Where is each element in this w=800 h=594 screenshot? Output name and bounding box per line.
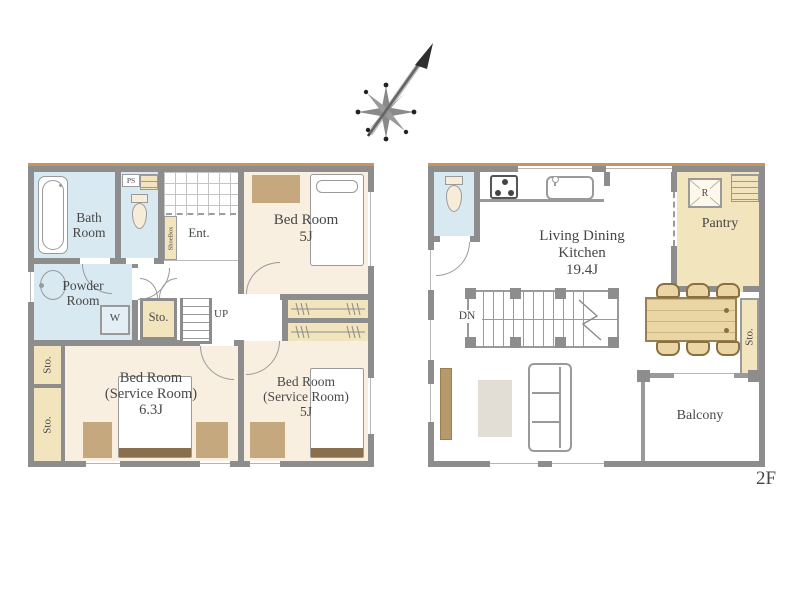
floorplan-canvas: ShoeBox PS (0, 0, 800, 594)
second-floor-plan: R Pantry Sto. DN (428, 166, 765, 467)
chair-icon (686, 341, 710, 356)
ps-label: PS (127, 176, 135, 185)
entrance-tile-floor (164, 172, 238, 216)
balcony-door (674, 371, 734, 379)
window (86, 461, 120, 467)
wall (637, 370, 650, 382)
entrance-step-edge (166, 213, 236, 215)
hanger-pipe-icon (288, 323, 368, 341)
chair-icon (686, 283, 710, 298)
stairs-down (467, 290, 619, 348)
chair-icon (656, 341, 680, 356)
stair-post (555, 337, 566, 348)
storage-right-label: Sto. (738, 298, 761, 376)
washer-label: W (100, 312, 130, 324)
window (518, 166, 592, 172)
table-knob (724, 308, 729, 313)
stair-post (465, 288, 476, 299)
ldk-label: Living Dining Kitchen 19.4J (500, 228, 664, 278)
tv-board (440, 368, 452, 440)
window (28, 272, 34, 302)
window (368, 378, 374, 434)
window (428, 320, 434, 360)
storage-hall-label: Sto. (140, 310, 177, 324)
dresser (196, 422, 228, 458)
closet-bedroom-c (288, 323, 368, 341)
stairs-up (180, 298, 212, 344)
wall (604, 172, 610, 186)
pantry-label: Pantry (684, 216, 756, 232)
pipe-space-box: PS (122, 174, 140, 187)
window (200, 461, 230, 467)
balcony-label: Balcony (664, 408, 736, 424)
bedroom-c-label: Bed Room (Service Room) 5J (245, 374, 367, 419)
stair-post (555, 288, 566, 299)
dresser (250, 422, 285, 458)
stair-post (608, 288, 619, 299)
desk (252, 175, 300, 203)
chair-icon (656, 283, 680, 298)
window (428, 384, 434, 422)
pantry-shelf (731, 174, 759, 202)
floor-label: 2F (744, 468, 788, 489)
stair-post (510, 288, 521, 299)
stairs-up-label: UP (214, 308, 240, 320)
closet-bedroom-a (288, 300, 368, 318)
window (552, 461, 604, 467)
stair-post (465, 337, 476, 348)
wall (61, 346, 65, 461)
rug (478, 380, 512, 437)
dresser (83, 422, 112, 458)
storage-left-lower-label: Sto. (34, 388, 61, 461)
toilet-icon (131, 194, 148, 203)
north-arrow-icon (352, 38, 448, 148)
window (250, 461, 280, 467)
wall (158, 172, 164, 264)
wall (154, 258, 164, 264)
stair-post (510, 337, 521, 348)
wall (743, 286, 759, 292)
dining-table (645, 297, 737, 342)
powder-room-label: Powder Room (38, 278, 128, 308)
bedroom-a-label: Bed Room 5J (244, 212, 368, 246)
window (490, 461, 538, 467)
stairs-down-label: DN (452, 310, 482, 323)
chair-icon (716, 283, 740, 298)
hall-step-line (164, 260, 238, 261)
wall (748, 370, 759, 382)
kitchen-sink-icon (546, 176, 594, 200)
storage-left-upper-label: Sto. (34, 346, 61, 384)
table-knob (724, 328, 729, 333)
entrance-label: Ent. (174, 226, 224, 241)
chair-icon (716, 341, 740, 356)
stove-icon (490, 175, 518, 199)
toilet-shelf (140, 174, 158, 190)
pantry-opening (673, 192, 675, 246)
refrigerator-label: R (700, 188, 711, 199)
bath-room-label: Bath Room (51, 210, 127, 240)
refrigerator-icon: R (688, 178, 722, 208)
wall (671, 172, 677, 192)
bedroom-b-label: Bed Room (Service Room) 6.3J (69, 370, 233, 419)
first-floor-plan: ShoeBox PS (28, 166, 374, 467)
sofa-icon (528, 363, 572, 452)
stairs-break-line (573, 294, 613, 346)
wall (470, 236, 480, 242)
toilet-icon (445, 176, 463, 185)
window (606, 166, 672, 172)
window (368, 192, 374, 266)
wall (238, 340, 244, 461)
stair-post (608, 337, 619, 348)
wall (132, 300, 138, 340)
wall (110, 258, 126, 264)
window (428, 250, 434, 290)
hanger-pipe-icon (288, 300, 368, 318)
door-arc (436, 242, 470, 276)
wall (34, 258, 80, 264)
